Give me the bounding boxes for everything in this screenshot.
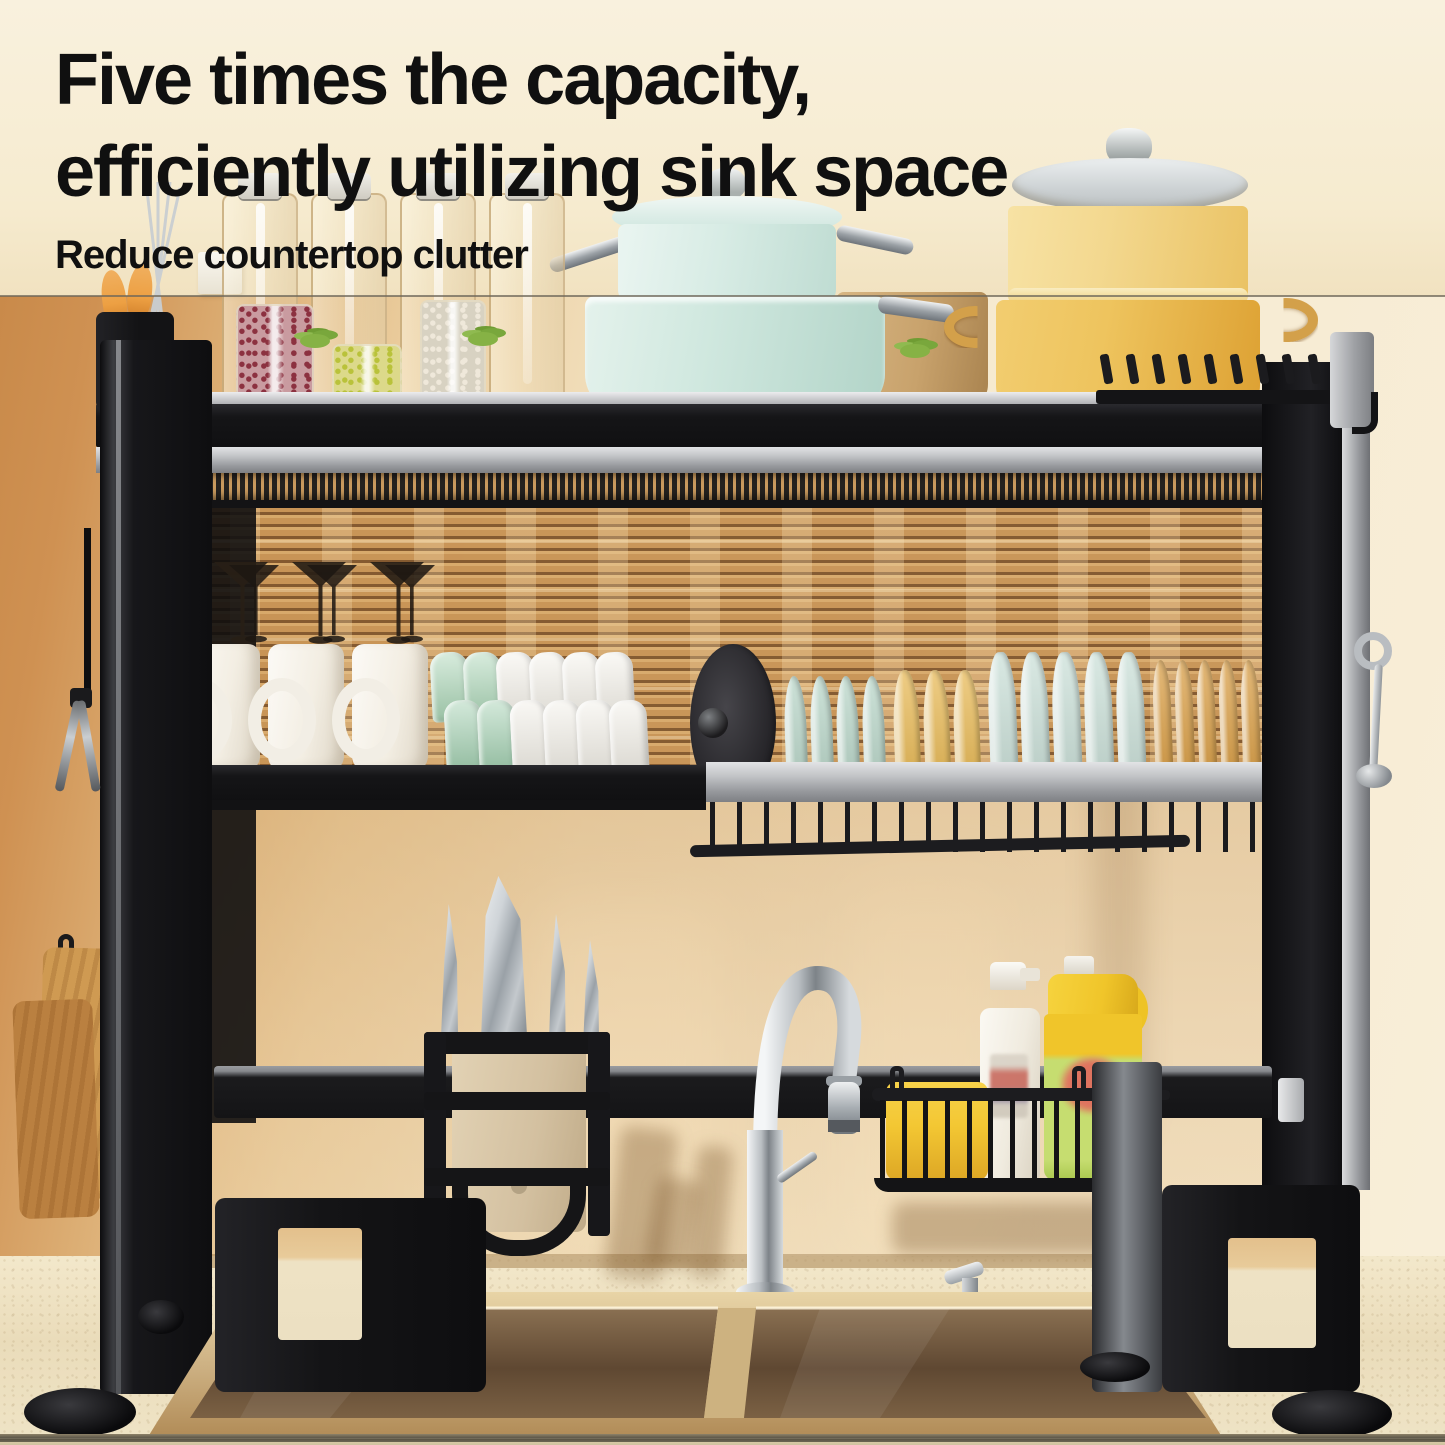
mug [352,644,428,772]
middle-shelf-rail-right [706,762,1338,802]
basket-wire [1010,1100,1015,1184]
peg [1255,353,1269,384]
top-shelf-front-rail [96,404,1340,447]
top-shelf-mesh-frame [120,500,1318,508]
left-post [100,340,212,1394]
hanging-ladle-ring [1354,632,1392,670]
wine-glass-pair [366,556,444,650]
basket-wire [923,1100,928,1184]
cutting-board-front [12,999,100,1220]
soap-jug-cap [1064,956,1094,976]
knife [540,914,572,1042]
utensil-peg-rail [1096,352,1332,404]
left-leg-window [278,1228,362,1340]
wine-glass-pair [210,556,288,650]
peg [1099,353,1113,384]
image-bottom-line [0,1439,1445,1442]
side-hook-icon [1352,392,1378,434]
knife-block-band [424,1092,610,1110]
hanging-ladle-bowl [1356,764,1392,788]
left-rear-foot [138,1300,184,1334]
wine-glasses [210,556,450,650]
wine-glass-pair [288,556,366,650]
right-leg-window [1228,1238,1316,1348]
basket-wire [1054,1100,1059,1184]
knife-block-top [424,1032,610,1054]
title-line-2: efficiently utilizing sink space [55,126,1235,218]
left-foot [24,1388,136,1436]
right-rear-foot [1080,1352,1150,1382]
mugs [184,644,448,774]
herb-sprig [900,344,930,358]
herb-sprig [300,334,330,348]
herb-sprig [468,332,498,346]
peg [1151,353,1165,384]
knife-set [428,876,608,1042]
right-front-leg [1092,1062,1162,1392]
peg [1177,353,1191,384]
over-sink-dish-rack-product-photo: Five times the capacity, efficiently uti… [0,0,1445,1445]
peg [1229,353,1243,384]
peg [1307,353,1321,384]
knife [576,940,604,1042]
peg [1203,353,1217,384]
basket-wire [988,1100,993,1184]
hanging-rod [84,528,91,706]
marketing-copy: Five times the capacity, efficiently uti… [55,34,1235,278]
title-line-1: Five times the capacity, [55,34,1235,126]
right-foot [1272,1390,1392,1438]
basket-wire [945,1100,950,1184]
top-shelf-silver-rail [96,447,1340,473]
basket-wire [1075,1100,1080,1184]
divider-line [0,295,1445,297]
peg [1125,353,1139,384]
basket-wire [967,1100,972,1184]
spray-bottle-nozzle [1020,968,1040,981]
middle-shelf-rail-left [150,765,706,802]
basket-wire [1032,1100,1037,1184]
knife [474,876,532,1042]
middle-shelf-underline [150,800,706,810]
shadow [892,1202,1112,1254]
peg [1281,353,1295,384]
right-latch [1278,1078,1304,1122]
right-post [1262,362,1344,1190]
knife [430,904,466,1042]
top-shelf-mesh [120,473,1318,502]
knife-block-side [588,1032,610,1236]
subtitle: Reduce countertop clutter [55,232,1235,278]
soap-jug-shoulder [1048,974,1138,1018]
